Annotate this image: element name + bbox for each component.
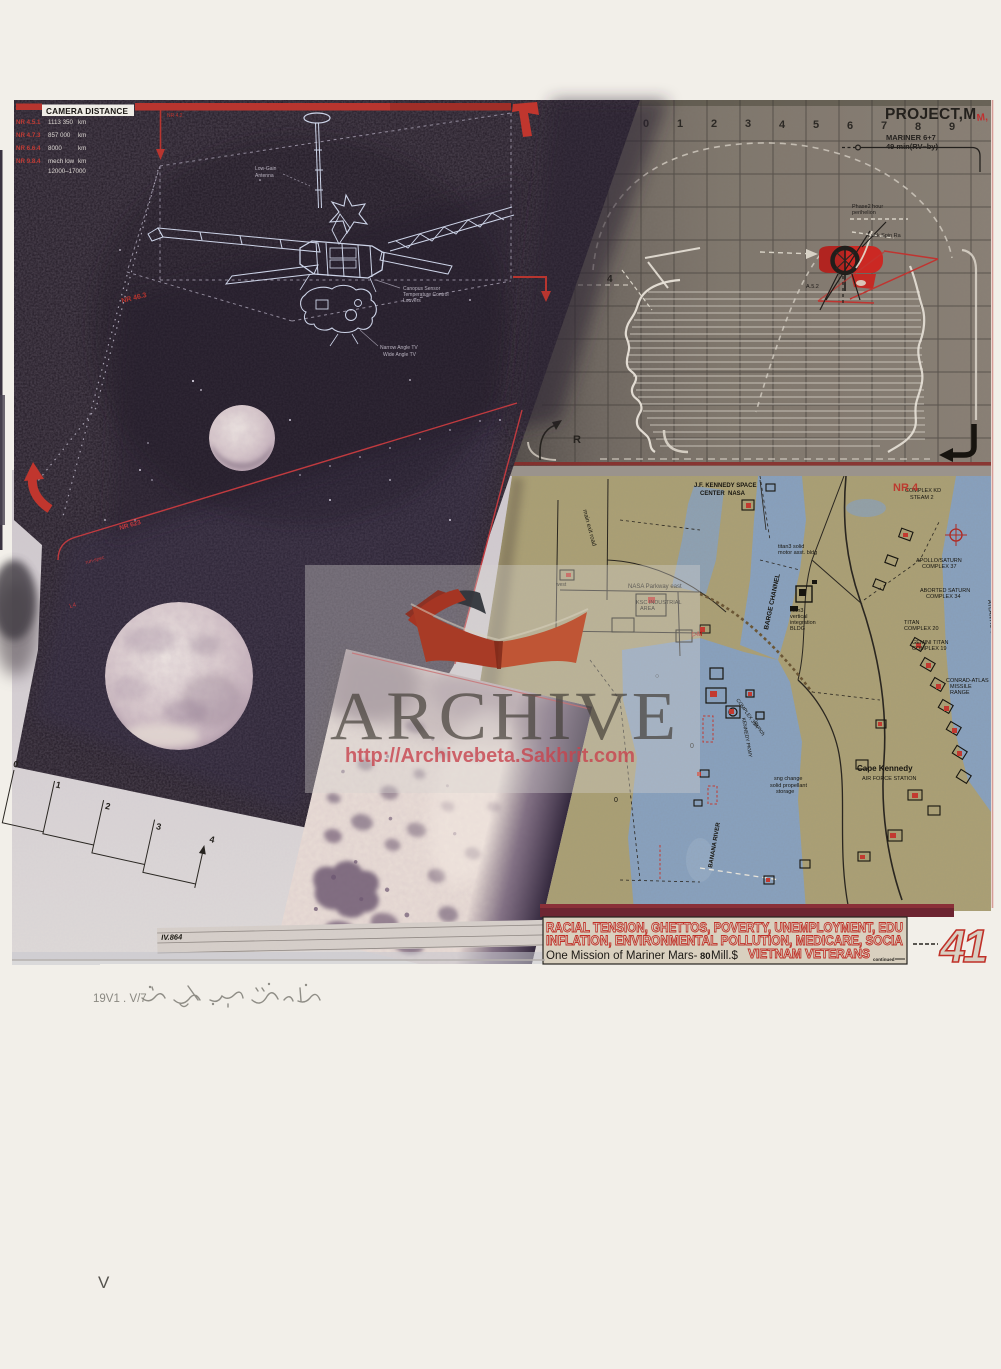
svg-text:5: 5	[813, 119, 819, 131]
svg-text:storage: storage	[776, 789, 794, 795]
svg-text:2: 2	[711, 118, 717, 130]
svg-text:NR 4.7.3: NR 4.7.3	[16, 132, 41, 139]
svg-text:Low-Gain: Low-Gain	[255, 166, 277, 172]
svg-text:NR 9.8.4: NR 9.8.4	[16, 158, 41, 165]
svg-text:12000–17000: 12000–17000	[48, 168, 86, 175]
svg-text:VIETNAM VETERANS: VIETNAM VETERANS	[748, 946, 870, 961]
svg-text:ARCHIVE: ARCHIVE	[330, 679, 680, 755]
svg-text:NR 4.5.1: NR 4.5.1	[16, 119, 41, 126]
svg-text:km: km	[78, 132, 86, 139]
svg-text:COMPLEX 19: COMPLEX 19	[912, 646, 947, 652]
svg-text:km: km	[78, 119, 86, 126]
svg-text:AIR FORCE STATION: AIR FORCE STATION	[862, 776, 917, 782]
svg-text:BLDG: BLDG	[790, 626, 805, 632]
svg-text:CAMERA DISTANCE: CAMERA DISTANCE	[46, 107, 128, 116]
svg-text:continued: continued	[873, 957, 895, 962]
svg-text:mech low: mech low	[48, 158, 75, 165]
svg-text:km: km	[78, 145, 86, 152]
svg-text:motor asst. bldg: motor asst. bldg	[778, 550, 817, 556]
svg-text:CENTER NASA: CENTER NASA	[700, 491, 746, 497]
svg-text:Antenna: Antenna	[255, 173, 274, 179]
svg-text:0: 0	[614, 797, 618, 804]
svg-text:J.F. KENNEDY SPACE: J.F. KENNEDY SPACE	[694, 483, 756, 489]
svg-text:8000: 8000	[48, 145, 62, 152]
svg-text:sng change: sng change	[774, 776, 802, 782]
svg-text:km: km	[78, 158, 86, 165]
svg-text:MARINER 6+7: MARINER 6+7	[886, 133, 936, 142]
svg-text:Cape Kennedy: Cape Kennedy	[857, 764, 913, 773]
svg-text:NR 4: NR 4	[893, 482, 919, 494]
svg-text:Narrow Angle TV: Narrow Angle TV	[380, 345, 418, 351]
svg-text:80: 80	[700, 951, 711, 962]
svg-text:49 min(RV–by): 49 min(RV–by)	[886, 142, 938, 151]
svg-text:Wide Angle TV: Wide Angle TV	[383, 352, 417, 358]
svg-text:NR 4.2: NR 4.2	[167, 113, 183, 119]
svg-text:6: 6	[847, 120, 853, 132]
svg-text:COMPLEX 20: COMPLEX 20	[904, 626, 939, 632]
svg-text:M,: M,	[976, 112, 988, 124]
svg-text:3: 3	[745, 118, 751, 130]
svg-text:19V1 . V/7: 19V1 . V/7	[93, 993, 147, 1005]
svg-text:RANGE: RANGE	[950, 690, 970, 696]
svg-text:Luck Spin Ra: Luck Spin Ra	[868, 233, 902, 239]
svg-text:V: V	[98, 1273, 110, 1292]
svg-text:perihelion: perihelion	[852, 210, 876, 216]
svg-text:http://Archivebeta.Sakhrit.com: http://Archivebeta.Sakhrit.com	[345, 745, 635, 767]
svg-text:R: R	[573, 434, 581, 446]
svg-text:4: 4	[779, 119, 786, 131]
svg-text:1113 350: 1113 350	[48, 119, 73, 126]
svg-text:857 000: 857 000	[48, 132, 71, 139]
svg-text:NR 6.6.4: NR 6.6.4	[16, 145, 41, 152]
svg-text:IV.864: IV.864	[161, 932, 183, 941]
svg-text:COMPLEX 37: COMPLEX 37	[922, 564, 957, 570]
svg-text:4: 4	[607, 274, 613, 285]
svg-text:PROJECT,M: PROJECT,M	[885, 106, 976, 123]
svg-text:41: 41	[939, 920, 987, 972]
svg-text:Louvers: Louvers	[403, 298, 421, 304]
svg-text:Mill.$: Mill.$	[711, 950, 738, 962]
svg-text:1: 1	[677, 118, 683, 130]
svg-text:COMPLEX 34: COMPLEX 34	[926, 594, 961, 600]
svg-text:One Mission of Mariner Mars-: One Mission of Mariner Mars-	[546, 950, 698, 962]
svg-text:STEAM 2: STEAM 2	[910, 495, 934, 501]
svg-text:A.5.2: A.5.2	[806, 284, 819, 290]
